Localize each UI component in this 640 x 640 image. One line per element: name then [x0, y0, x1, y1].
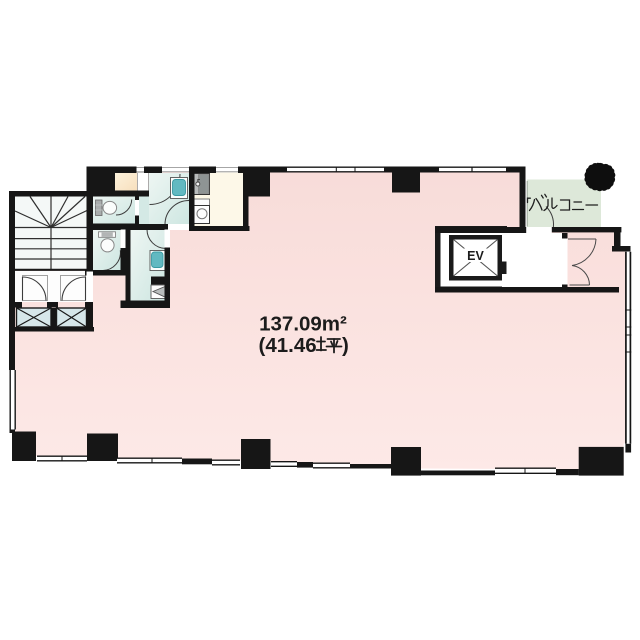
svg-text:): )	[342, 334, 349, 357]
svg-text:(41.46: (41.46	[259, 334, 317, 357]
svg-text:137.09m²: 137.09m²	[259, 313, 347, 336]
svg-text:EV: EV	[467, 249, 484, 263]
